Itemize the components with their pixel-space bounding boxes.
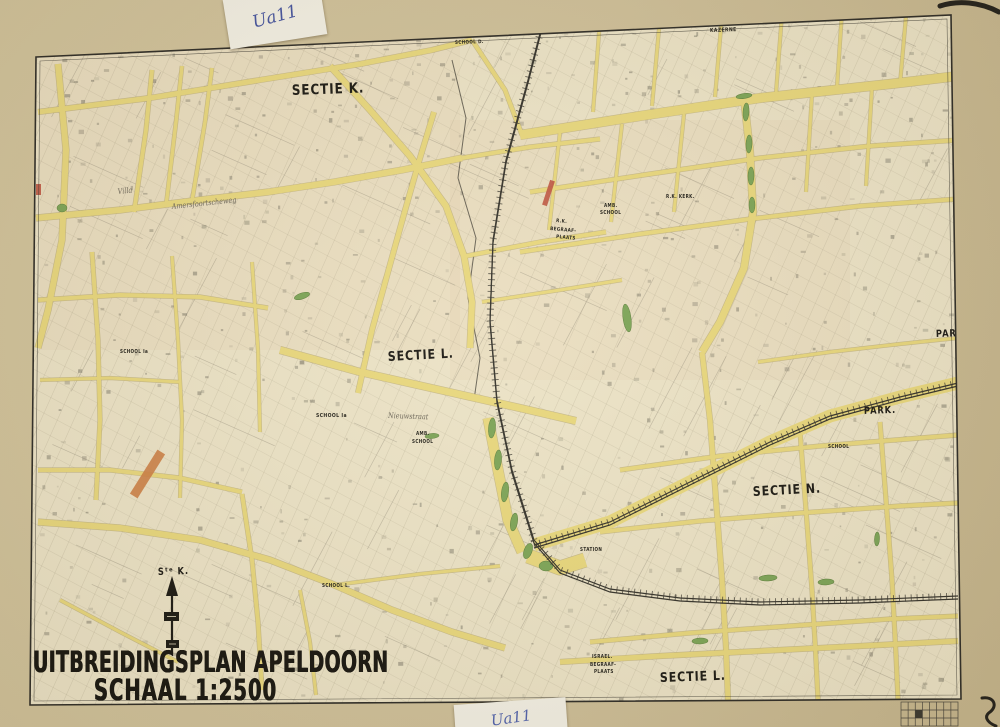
map-scale-text: SCHAAL 1:2500 [94,674,277,707]
pen-stroke [982,698,996,726]
green-area [749,197,755,213]
label-street-nieuwstraat: Nieuwstraat [387,410,429,421]
label-amb-school-mid-1: AMB. [416,431,429,438]
label-ste-k: Sᵗᵉ K. [158,566,189,578]
label-school-right: SCHOOL [828,444,849,451]
handwritten-code-top: Ua11 [250,1,300,32]
green-area [57,204,67,212]
label-sectie-l-bottom: SECTIE L. [660,668,727,685]
label-isr-begraafplaats-3: PLAATS [594,669,614,676]
map-content: SECTIE K.SECTIE L.SECTIE N.SECTIE L.PARK… [0,0,1000,727]
label-rk-kerk: R.K. KERK. [666,194,695,201]
scanned-map-sheet: SECTIE K.SECTIE L.SECTIE N.SECTIE L.PARK… [0,0,1000,727]
label-school-l: SCHOOL L. [322,583,350,590]
label-villa: Villa [117,185,132,196]
label-park-2: PARK. [864,405,897,417]
label-amb-school-mid-2: SCHOOL [412,439,433,446]
green-area [746,135,753,153]
label-school-ia-left: SCHOOL Ia [120,349,148,356]
label-rk-begraafplaats-1: R.K. [556,218,568,225]
label-isr-begraafplaats-1: ISRAEL. [592,654,612,661]
label-kazerne: KAZERNE [710,27,737,34]
green-area [692,638,708,645]
label-amb-school-1: AMB. [604,203,617,210]
label-school-top: SCHOOL D. [455,39,484,47]
handwritten-code-bottom: Ua11 [489,706,532,727]
green-area [748,167,754,185]
label-amb-school-2: SCHOOL [600,210,621,217]
label-isr-begraafplaats-2: BEGRAAF- [590,662,616,669]
sheet-index-stamp [901,702,958,726]
label-sectie-k: SECTIE K. [292,81,365,100]
pen-stroke [940,3,999,12]
label-school-ia-mid: SCHOOL Ia [316,413,347,420]
map-canvas: SECTIE K.SECTIE L.SECTIE N.SECTIE L.PARK… [0,0,1000,727]
label-station: STATION [580,547,602,554]
